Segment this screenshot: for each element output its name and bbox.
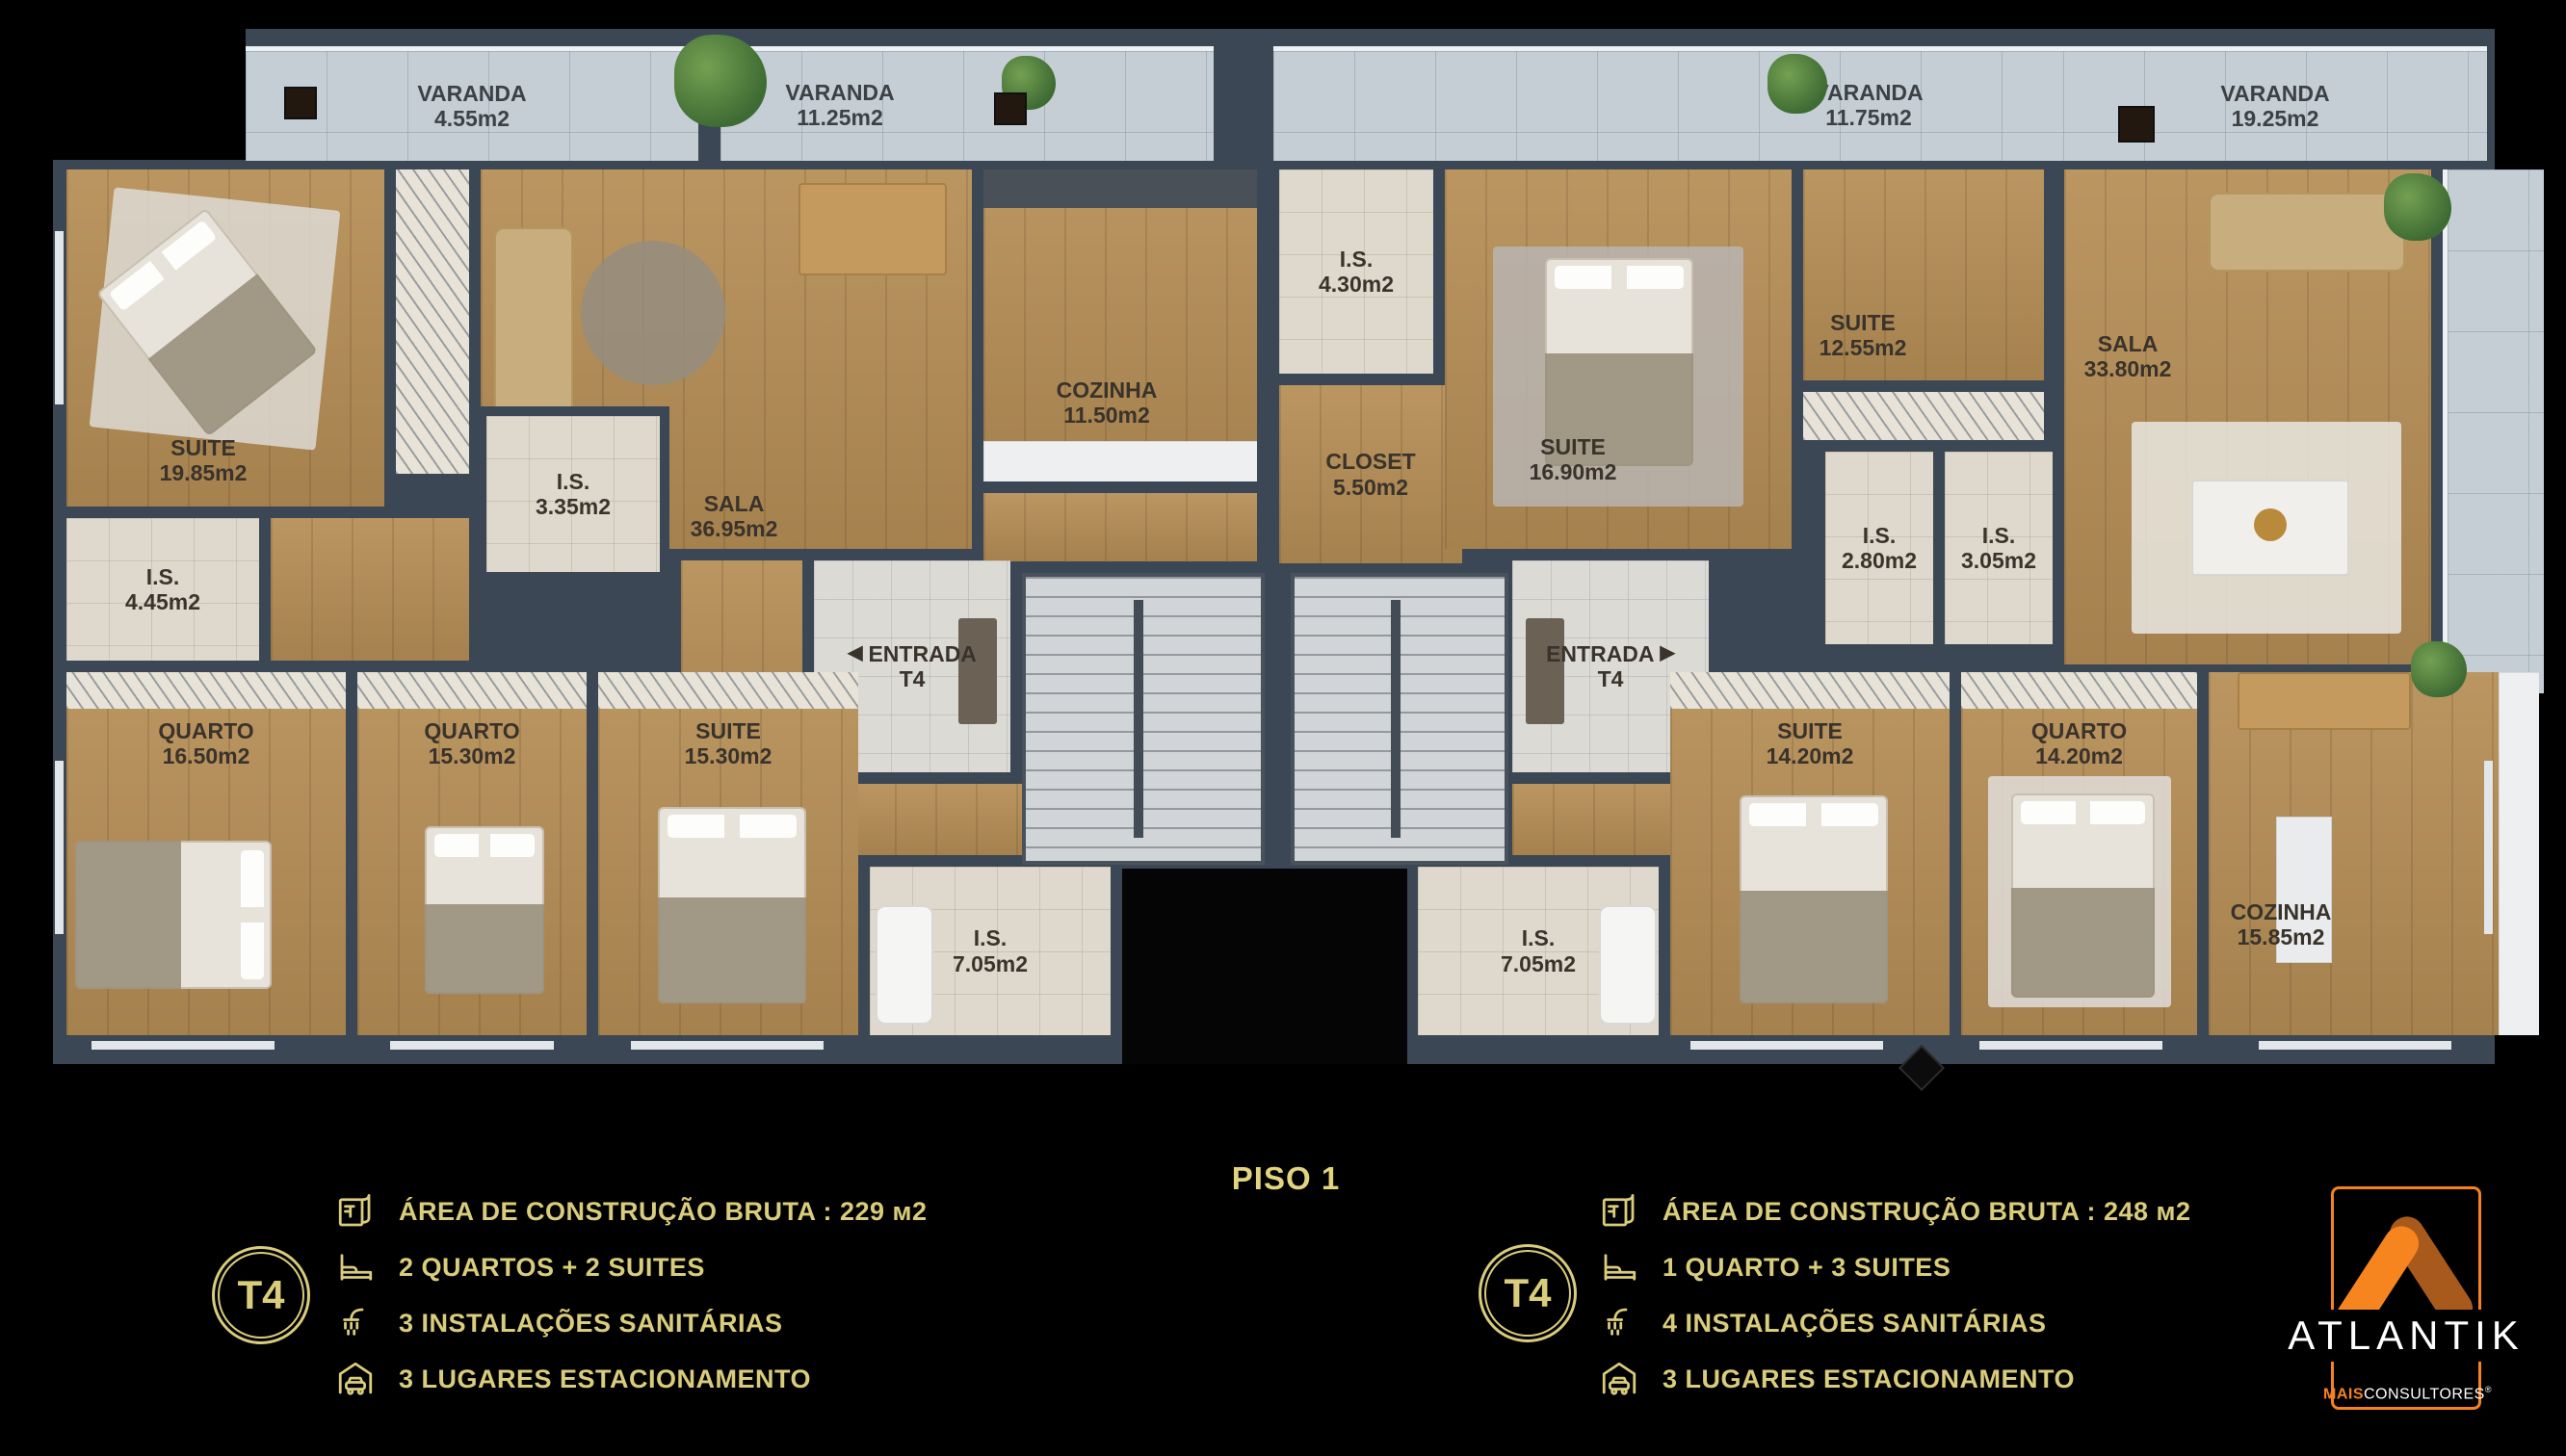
floorplan-poster: VARANDA4.55m2 VARANDA11.25m2 VARANDA11.7…	[0, 0, 2566, 1456]
room-suite-16-90: SUITE16.90m2	[1445, 169, 1792, 549]
hallway-floor	[271, 518, 469, 661]
legend-left: ÁREA DE CONSTRUÇÃO BRUTA : 229 м2 2 QUAR…	[335, 1191, 928, 1399]
room-suite-15-30: SUITE15.30m2	[598, 672, 858, 1035]
room-quarto-15-30: QUARTO15.30m2	[357, 672, 587, 1035]
garage-icon	[335, 1359, 376, 1399]
legend-text: 1 QUARTO + 3 SUITES	[1663, 1253, 1951, 1283]
wardrobe-area	[396, 169, 469, 474]
plant	[1767, 54, 1827, 114]
building-notch	[1122, 869, 1407, 1064]
fire-table	[994, 92, 1027, 125]
legend-item: 2 QUARTOS + 2 SUITES	[335, 1247, 928, 1287]
room-label: QUARTO15.30m2	[357, 672, 587, 1035]
floor-title: PISO 1	[1185, 1160, 1387, 1197]
background-patch	[53, 29, 246, 160]
room-label: I.S.3.35m2	[486, 416, 660, 572]
room-sala-33-80: SALA33.80m2	[2064, 169, 2431, 664]
room-label: I.S.2.80m2	[1825, 452, 1933, 644]
room-label: I.S.3.05m2	[1945, 452, 2053, 644]
kitchen-cabinets	[983, 441, 1257, 481]
room-label: SALA36.95m2	[691, 491, 778, 541]
building-plan: VARANDA4.55m2 VARANDA11.25m2 VARANDA11.7…	[53, 29, 2495, 1064]
legend-item: 3 LUGARES ESTACIONAMENTO	[1599, 1359, 2191, 1399]
room-varanda-d: VARANDA19.25m2	[2063, 46, 2487, 161]
room-varanda-b: VARANDA11.25m2	[720, 46, 1214, 161]
room-label: I.S.7.05m2	[870, 867, 1111, 1035]
room-label: I.S.7.05m2	[1418, 867, 1659, 1035]
room-is-7-05-left: I.S.7.05m2	[870, 867, 1111, 1035]
room-suite-19-85: SUITE19.85m2	[66, 169, 384, 507]
window	[55, 761, 64, 934]
room-label: SUITE12.55m2	[1820, 310, 1907, 360]
window	[390, 1041, 554, 1050]
table-centerpiece	[2254, 508, 2287, 541]
room-is-2-80: I.S.2.80m2	[1825, 452, 1933, 644]
legend-item: ÁREA DE CONSTRUÇÃO BRUTA : 229 м2	[335, 1191, 928, 1232]
window	[92, 1041, 275, 1050]
blueprint-icon	[1599, 1191, 1639, 1232]
room-closet-5-50: CLOSET5.50m2	[1279, 385, 1462, 563]
room-label: VARANDA11.25m2	[785, 80, 894, 130]
staircase-right	[1291, 573, 1508, 865]
room-label: CLOSET5.50m2	[1279, 385, 1462, 563]
entry-arrow-icon: ◀	[848, 642, 862, 664]
legend-text: 3 LUGARES ESTACIONAMENTO	[1663, 1365, 2075, 1394]
legend-item: 4 INSTALAÇÕES SANITÁRIAS	[1599, 1303, 2191, 1343]
room-varanda-c: VARANDA11.75m2	[1273, 46, 2063, 161]
unit-type-badge-right: T4	[1479, 1244, 1577, 1342]
window	[2484, 761, 2493, 934]
legend-text: 3 LUGARES ESTACIONAMENTO	[399, 1365, 811, 1394]
room-label: VARANDA11.75m2	[1814, 80, 1923, 130]
legend-item: 3 LUGARES ESTACIONAMENTO	[335, 1359, 928, 1399]
legend-item: 3 INSTALAÇÕES SANITÁRIAS	[335, 1303, 928, 1343]
window	[1979, 1041, 2162, 1050]
brand-subtitle: MAISCONSULTORES®	[2323, 1385, 2483, 1403]
shower-icon	[335, 1303, 376, 1343]
room-is-3-35: I.S.3.35m2	[477, 406, 669, 582]
kitchen-cabinets	[2499, 672, 2539, 1035]
room-suite-12-55: SUITE12.55m2	[1803, 169, 2044, 380]
room-suite-14-20: SUITE14.20m2	[1670, 672, 1950, 1035]
room-quarto-16-50: QUARTO16.50m2	[66, 672, 346, 1035]
plant	[2411, 641, 2467, 697]
room-label: SUITE16.90m2	[1530, 434, 1617, 484]
brand-wordmark: ATLANTIK	[2269, 1310, 2543, 1362]
bed-icon	[335, 1247, 376, 1287]
window	[2259, 1041, 2451, 1050]
wardrobe-area	[1803, 392, 2044, 440]
legend-text: 3 INSTALAÇÕES SANITÁRIAS	[399, 1309, 783, 1339]
legend-right: ÁREA DE CONSTRUÇÃO BRUTA : 248 м2 1 QUAR…	[1599, 1191, 2191, 1399]
room-label: I.S.4.45m2	[66, 518, 259, 661]
room-label: SALA33.80m2	[2084, 331, 2172, 381]
room-is-4-30: I.S.4.30m2	[1279, 169, 1433, 374]
legend-text: 4 INSTALAÇÕES SANITÁRIAS	[1663, 1309, 2047, 1339]
room-cozinha-11-50: COZINHA11.50m2	[983, 169, 1257, 481]
room-quarto-14-20: QUARTO14.20m2	[1961, 672, 2197, 1035]
unit-type-badge-left: T4	[212, 1246, 310, 1344]
blueprint-icon	[335, 1191, 376, 1232]
dining-table	[799, 183, 947, 275]
legend-item: ÁREA DE CONSTRUÇÃO BRUTA : 248 м2	[1599, 1191, 2191, 1232]
hallway-floor	[983, 493, 1257, 561]
window	[631, 1041, 824, 1050]
staircase-left	[1022, 573, 1265, 865]
sofa	[2209, 193, 2405, 272]
entry-arrow-icon: ▶	[1661, 642, 1675, 664]
shower-icon	[1599, 1303, 1639, 1343]
legend-text: ÁREA DE CONSTRUÇÃO BRUTA : 248 м2	[1663, 1197, 2191, 1227]
window	[1690, 1041, 1883, 1050]
room-label: SUITE15.30m2	[598, 672, 858, 1035]
room-label: COZINHA11.50m2	[1057, 377, 1158, 428]
garage-icon	[1599, 1359, 1639, 1399]
room-label: SUITE14.20m2	[1670, 672, 1950, 1035]
kitchen-counter	[983, 169, 1257, 208]
bed-icon	[1599, 1247, 1639, 1287]
room-label: QUARTO16.50m2	[66, 672, 346, 1035]
round-rug	[581, 241, 725, 385]
fire-table	[2118, 106, 2155, 143]
legend-text: ÁREA DE CONSTRUÇÃO BRUTA : 229 м2	[399, 1197, 928, 1227]
window	[55, 231, 64, 404]
legend-item: 1 QUARTO + 3 SUITES	[1599, 1247, 2191, 1287]
room-label: COZINHA15.85m2	[2231, 899, 2332, 949]
terrace-strip	[2443, 169, 2544, 693]
room-label: QUARTO14.20m2	[1961, 672, 2197, 1035]
room-label: SUITE19.85m2	[160, 435, 248, 485]
legend-text: 2 QUARTOS + 2 SUITES	[399, 1253, 705, 1283]
fire-table	[284, 87, 317, 119]
plant	[674, 35, 767, 127]
plant	[2384, 173, 2451, 241]
room-label: I.S.4.30m2	[1279, 169, 1433, 374]
room-is-7-05-right: I.S.7.05m2	[1418, 867, 1659, 1035]
room-is-3-05: I.S.3.05m2	[1945, 452, 2053, 644]
kitchen-table	[2238, 672, 2411, 730]
room-is-4-45: I.S.4.45m2	[66, 518, 259, 661]
